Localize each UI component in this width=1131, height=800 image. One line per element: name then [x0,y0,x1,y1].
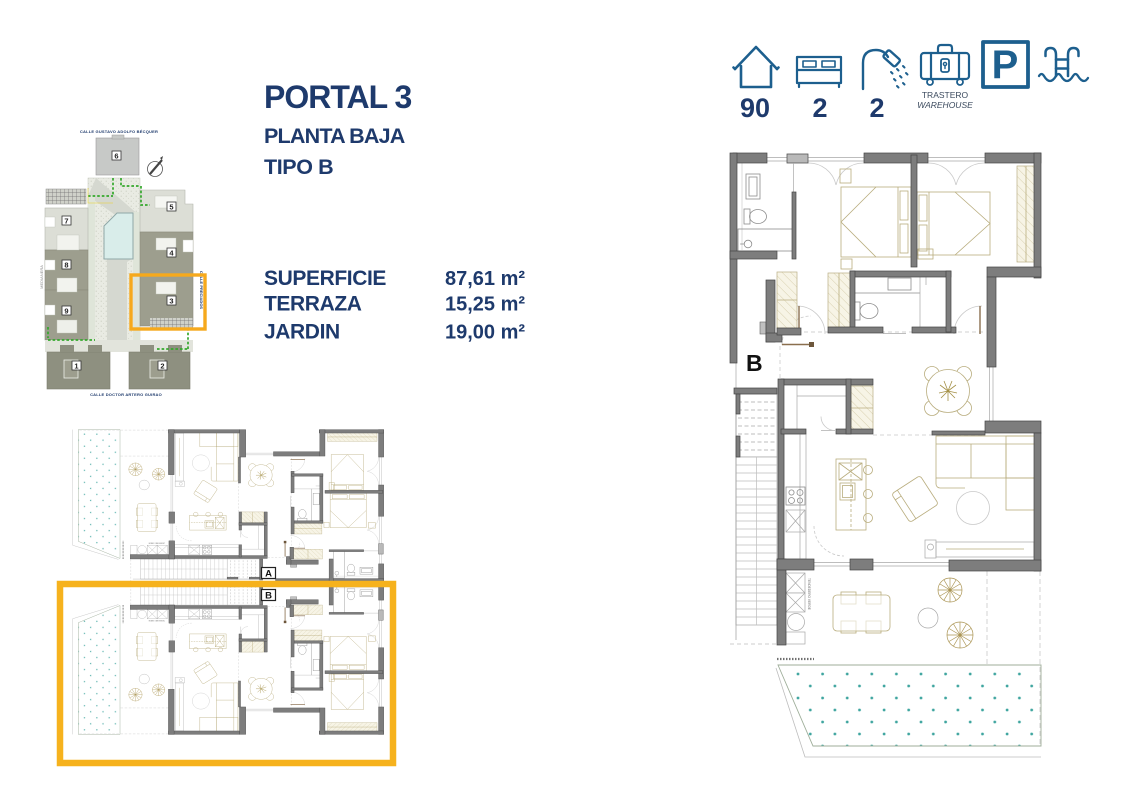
svg-text:6: 6 [114,152,118,161]
svg-text:WAREHOUSE: WAREHOUSE [917,100,973,110]
svg-text:9: 9 [64,307,68,316]
svg-text:8: 8 [64,261,68,270]
svg-text:TENDEDERO VERDE: TENDEDERO VERDE [807,578,811,610]
svg-text:TIPO B: TIPO B [264,155,333,179]
svg-text:P: P [992,43,1019,87]
svg-text:1: 1 [74,362,78,371]
svg-text:15,25 m²: 15,25 m² [445,294,525,316]
svg-text:PORTAL 3: PORTAL 3 [264,79,411,115]
svg-text:SUPERFICIE: SUPERFICIE [264,267,386,290]
svg-text:19,00 m²: 19,00 m² [445,322,525,344]
svg-text:JARDIN: JARDIN [264,321,340,344]
svg-text:TERRAZA: TERRAZA [264,293,362,316]
svg-text:MEDIANERA: MEDIANERA [39,265,44,289]
svg-text:B: B [265,591,272,602]
svg-text:7: 7 [64,217,68,226]
svg-text:TRASTERO: TRASTERO [922,90,969,100]
svg-text:2: 2 [812,93,827,123]
svg-text:2: 2 [160,362,164,371]
svg-text:90: 90 [740,93,770,123]
svg-text:A: A [265,569,272,580]
svg-text:3: 3 [169,297,173,306]
svg-text:5: 5 [169,203,173,212]
svg-text:87,61 m²: 87,61 m² [445,268,525,290]
svg-text:CALLE GUSTAVO ADOLFO BÉCQUER: CALLE GUSTAVO ADOLFO BÉCQUER [80,129,158,134]
svg-text:PLANTA BAJA: PLANTA BAJA [264,124,405,148]
svg-text:B: B [746,350,763,376]
svg-text:2: 2 [869,93,884,123]
svg-text:CALLE DOCTOR ARTERO GUIRAO: CALLE DOCTOR ARTERO GUIRAO [90,392,162,397]
